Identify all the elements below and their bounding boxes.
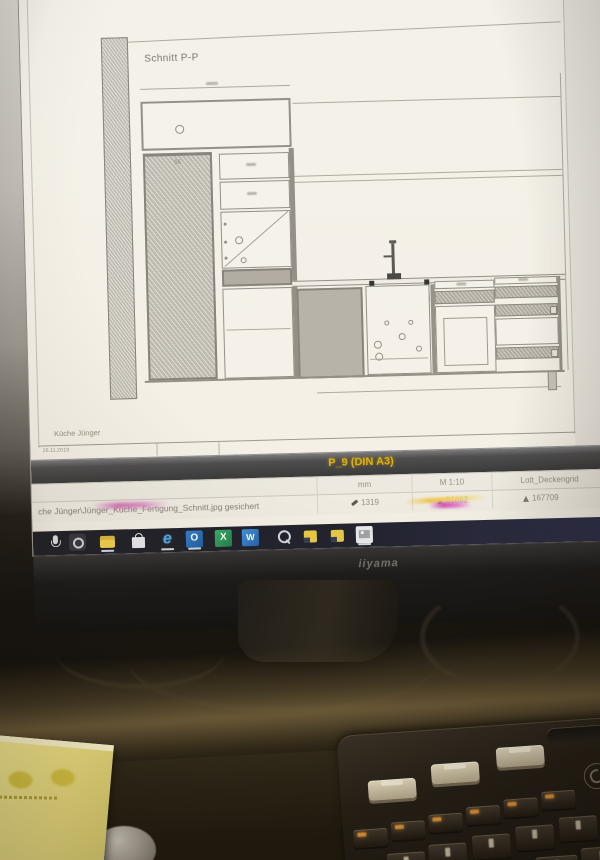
- key-legend: [395, 825, 404, 830]
- note-printed-text: [0, 796, 57, 800]
- keyboard-key: [472, 833, 512, 860]
- key-legend: [357, 832, 366, 837]
- keyboard-key: [535, 855, 579, 860]
- photo-scene: Küche Jünger 26.11.2019 Schnitt P-P: [0, 0, 600, 860]
- shelf-dim-2: [247, 192, 257, 195]
- door-base-cabinet: [434, 280, 496, 374]
- icon-glyph: X: [215, 530, 232, 547]
- key-legend: [488, 838, 494, 847]
- icon-glyph: W: [242, 529, 259, 546]
- keyboard-key: [496, 745, 545, 768]
- sheet-frame-left: [26, 0, 39, 448]
- wall-line-upper: [293, 96, 561, 104]
- fitting-dot-2: [224, 241, 227, 244]
- keyboard-key: [559, 815, 599, 842]
- faucet-icon: [383, 240, 404, 281]
- adjust-hole: [399, 333, 406, 340]
- sticky-notepad: [0, 735, 114, 860]
- adjust-hole: [408, 320, 413, 325]
- taskbar-icon-app-dark[interactable]: [69, 533, 86, 550]
- ceiling-line: [127, 21, 561, 42]
- keyboard: [336, 716, 600, 860]
- cad-sheet: Küche Jünger 26.11.2019 Schnitt P-P: [18, 0, 600, 460]
- taskbar-icon-internet-explorer[interactable]: e: [159, 531, 176, 548]
- cad-drawing: Schnitt P-P 55: [80, 19, 591, 444]
- key-legend: [432, 817, 441, 822]
- keyboard-key: [387, 851, 427, 860]
- taskbar-icon-app-yellow-2[interactable]: [329, 527, 346, 544]
- key-legend: [507, 802, 516, 807]
- triangle-icon: [437, 498, 443, 504]
- pen-icon: [351, 499, 358, 505]
- taskbar-icon-store[interactable]: [130, 532, 147, 549]
- key-legend: [403, 856, 409, 860]
- coord-field-1: 81062: [412, 491, 492, 511]
- taskbar-icon-excel[interactable]: X: [215, 530, 232, 547]
- coord-field-2: 167709: [492, 486, 600, 509]
- fitting-dot-3: [225, 257, 228, 260]
- note-dot: [8, 770, 33, 789]
- appliance-panel: [296, 287, 364, 379]
- taskbar-active-indicator: [188, 547, 201, 549]
- triangle-icon: [523, 496, 529, 502]
- sink-base-cabinet: [365, 284, 431, 375]
- monitor: Küche Jünger 26.11.2019 Schnitt P-P: [18, 0, 600, 632]
- keyboard-key: [466, 805, 501, 825]
- keyboard-key: [431, 761, 480, 784]
- cabinet-bottom-line: [370, 357, 428, 360]
- taskbar-icon-outlook[interactable]: O: [186, 530, 203, 547]
- taskbar-active-indicator: [101, 550, 114, 552]
- drawer-stack-cabinet: [494, 276, 562, 372]
- keyboard-key: [428, 842, 468, 860]
- mid-column-niche: [220, 210, 291, 269]
- key-legend: [445, 847, 451, 856]
- taskbar-icon-search[interactable]: [276, 528, 293, 545]
- keyboard-key: [503, 797, 538, 817]
- door-label: 55: [174, 160, 181, 166]
- section-title: Schnitt P-P: [144, 52, 199, 64]
- plinth-shadow-line: [317, 386, 561, 393]
- diagonal-brace: [221, 211, 289, 267]
- note-dot: [50, 768, 75, 787]
- mid-base-open: [222, 287, 294, 379]
- taskbar-icon-app-yellow-1[interactable]: [302, 527, 319, 544]
- drawer-handle: [550, 306, 557, 314]
- key-legend: [532, 829, 538, 838]
- monitor-brand-logo: iiyama: [313, 556, 443, 571]
- drawer-handle: [551, 349, 558, 357]
- drawing-date: 26.11.2019: [42, 448, 69, 454]
- taskbar-icon-explorer[interactable]: [99, 533, 116, 550]
- titleblock-divider: [218, 441, 219, 455]
- keyboard-roller-bar: [546, 721, 600, 745]
- taskbar-icon-photos[interactable]: [356, 526, 373, 543]
- fitting-dot-1: [224, 223, 227, 226]
- taskbar-active-indicator: [161, 548, 174, 550]
- worktop-section-mid: [222, 268, 292, 287]
- adjust-hole: [384, 320, 389, 325]
- dimension-text: [206, 82, 218, 85]
- key-legend: [545, 794, 554, 799]
- door-front-line: [443, 317, 488, 366]
- taskbar-active-indicator: [358, 543, 371, 545]
- mid-base-shelf-line: [226, 328, 290, 331]
- taskbar-icon-word[interactable]: W: [242, 529, 259, 546]
- icon-glyph: e: [159, 531, 176, 548]
- logitech-logo-icon: [583, 762, 600, 790]
- adjust-hole: [374, 341, 382, 349]
- keyboard-key: [353, 828, 388, 848]
- keyboard-key: [391, 820, 426, 840]
- hole-marker: [175, 125, 184, 134]
- keyboard-key: [368, 778, 417, 801]
- keyboard-key: [428, 813, 463, 833]
- dimension-line-top: [140, 85, 290, 90]
- count-field: 1319: [317, 493, 412, 513]
- adjust-hole: [416, 346, 422, 352]
- wall-line-mid-b: [295, 175, 563, 183]
- cabinet-leg: [548, 371, 557, 390]
- keyboard-key: [581, 845, 600, 860]
- key-legend: [575, 820, 581, 829]
- active-sheet-tab[interactable]: P_9 (DIN A3): [271, 454, 451, 471]
- key-legend: [470, 809, 479, 814]
- shelf-dim-1: [246, 163, 256, 166]
- keyboard-key: [515, 824, 555, 851]
- keyboard-key: [541, 790, 576, 810]
- icon-glyph: O: [186, 530, 203, 547]
- tall-cabinet-door: 55: [143, 152, 218, 381]
- wall-section-hatch: [101, 37, 137, 400]
- tall-cabinet-top-compartment: [140, 98, 291, 151]
- monitor-screen: Küche Jünger 26.11.2019 Schnitt P-P: [18, 0, 600, 556]
- taskbar-icon-mic[interactable]: [47, 534, 64, 551]
